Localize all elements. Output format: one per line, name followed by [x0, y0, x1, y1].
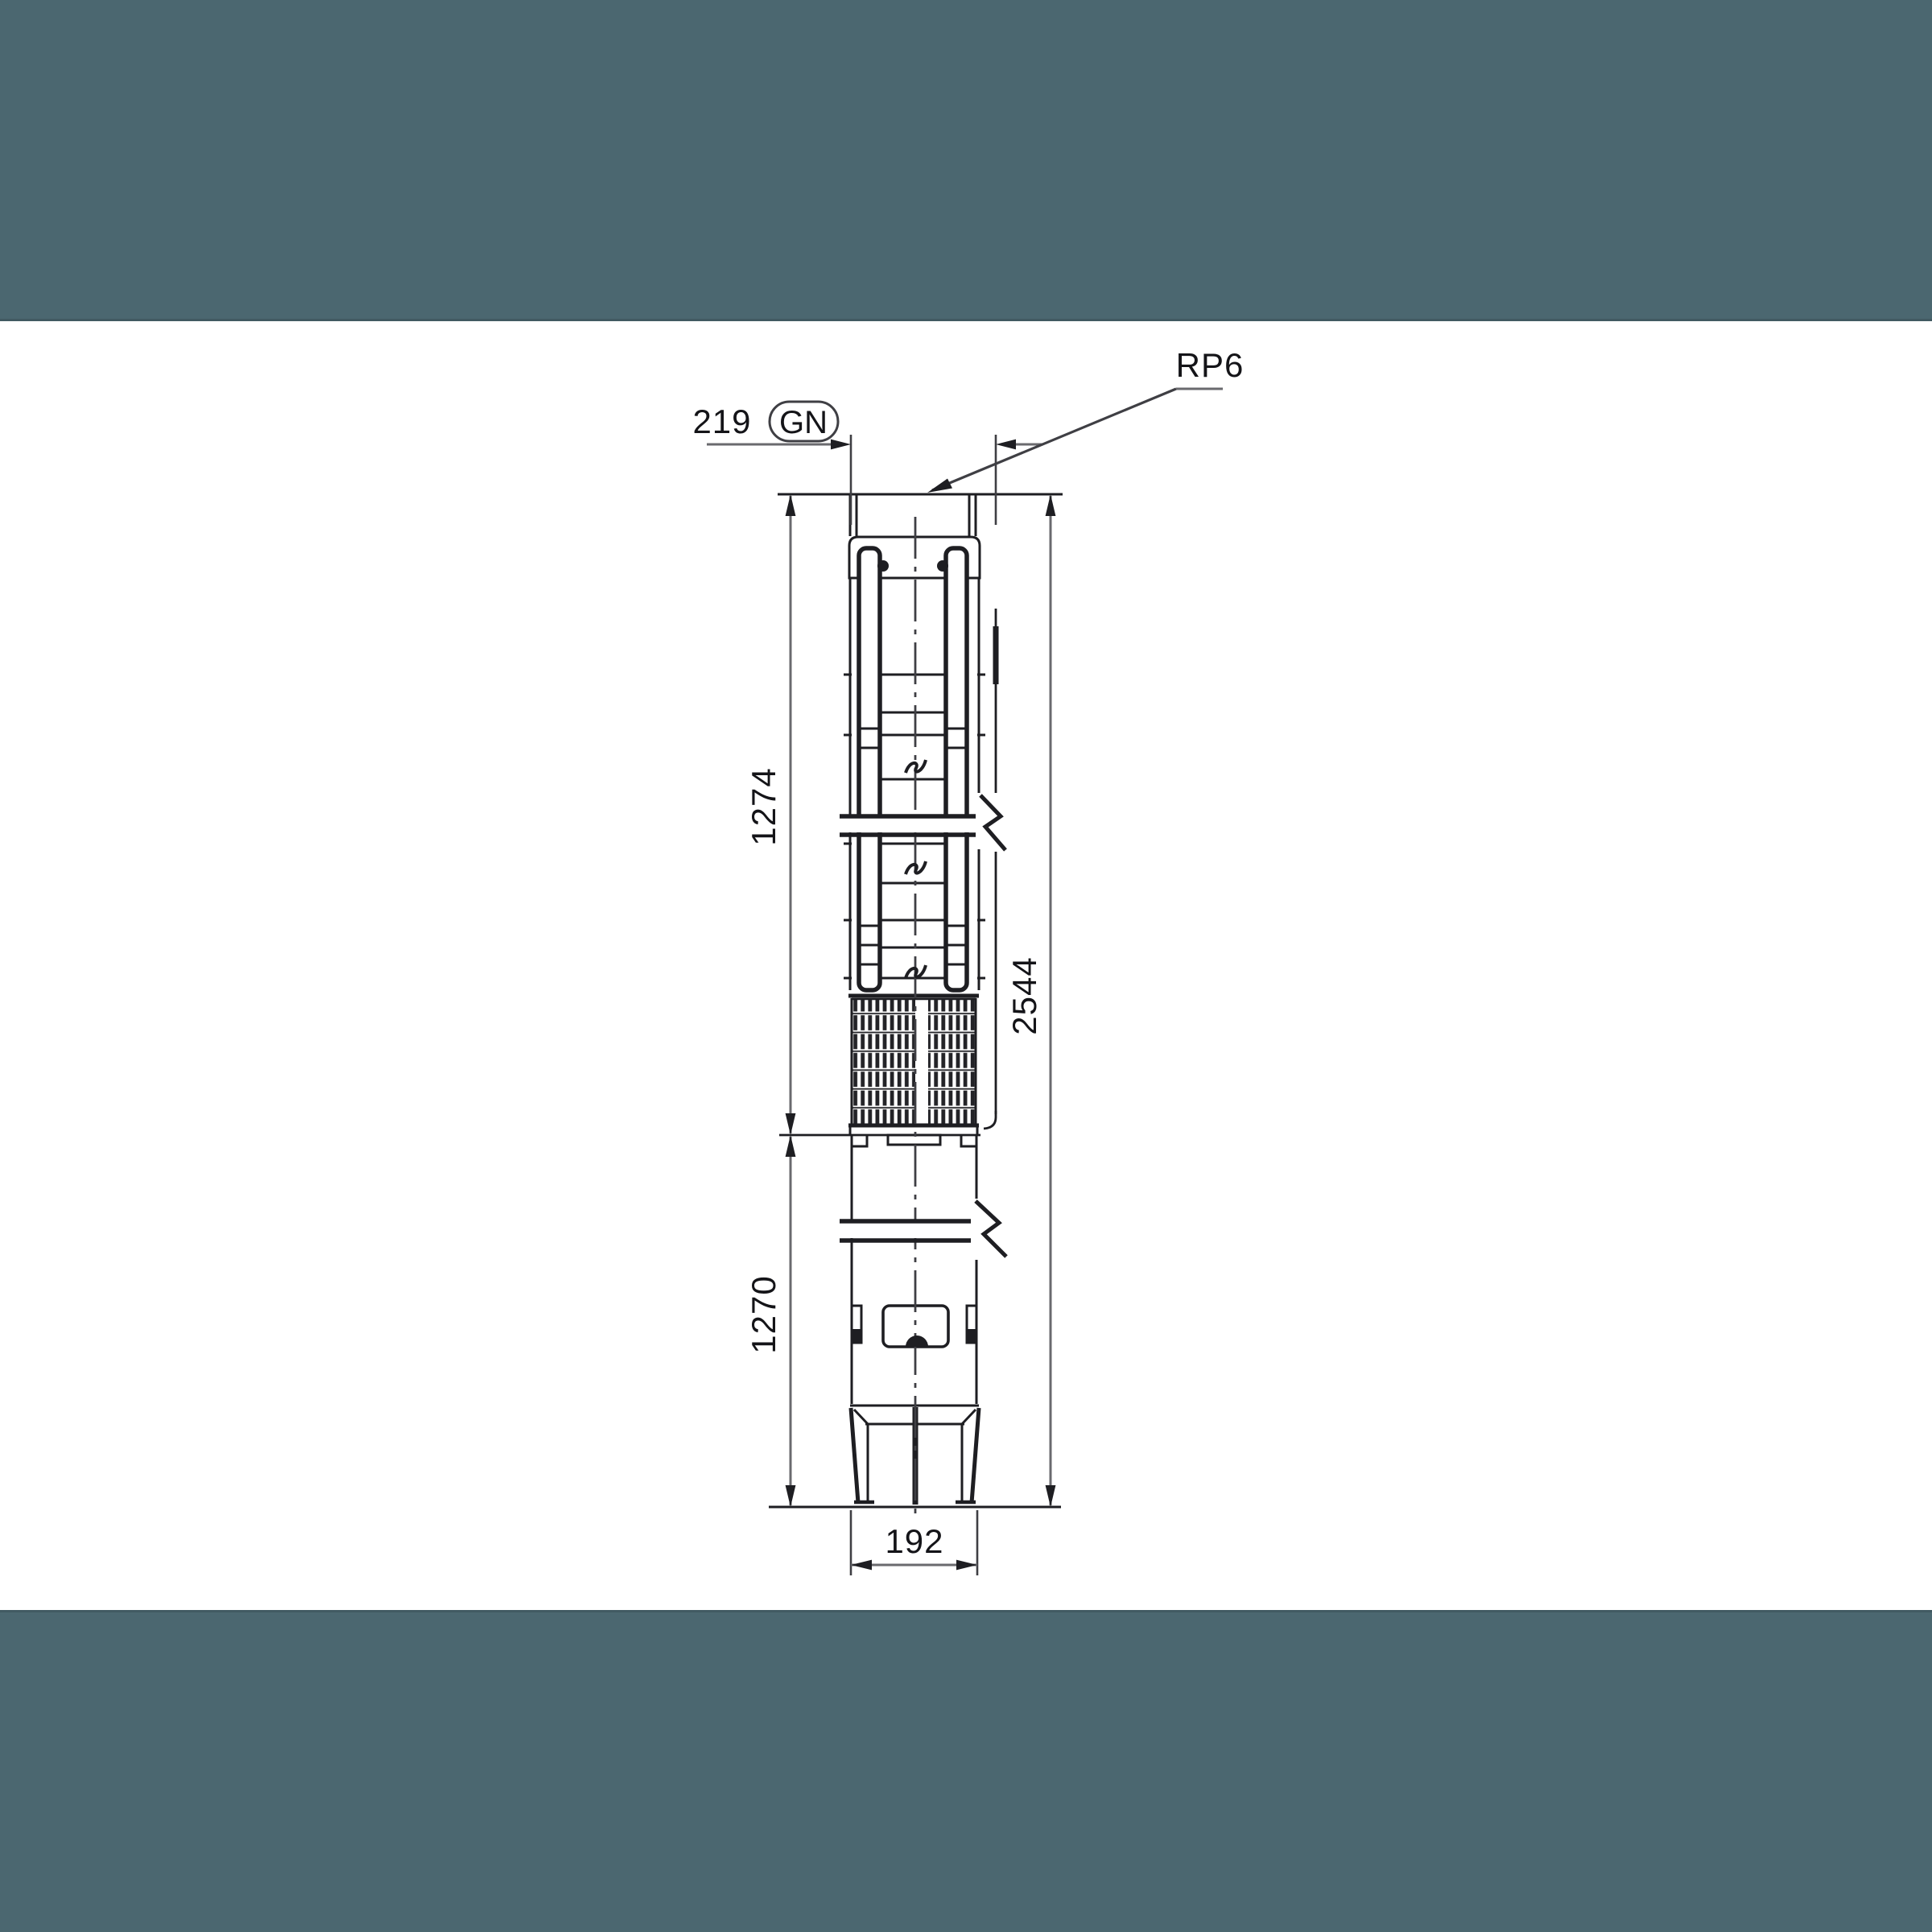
nameplate-gland: [906, 1335, 928, 1347]
power-cable: [984, 609, 999, 1129]
suction-strainer: [848, 996, 979, 1125]
screenshot-canvas: 219 GN RP6 1274 1270: [0, 0, 1932, 1932]
dim-label-pump-section-length: 1274: [745, 767, 782, 845]
dimension-bottom-diameter: 192: [851, 1510, 977, 1575]
dim-label-total-length: 2544: [1005, 956, 1043, 1034]
dimension-motor-section-length: 1270: [745, 1135, 795, 1507]
notch-fill-left: [852, 1329, 861, 1343]
pump-dimensional-drawing: 219 GN RP6 1274 1270: [0, 0, 1932, 1932]
cable-clip: [993, 626, 999, 684]
motor-body: [852, 1135, 976, 1404]
dim-label-outer-diameter: 219: [692, 402, 751, 440]
top-band-edge: [0, 319, 1932, 321]
strainer-center-gap: [915, 998, 928, 1124]
gn-badge-label: GN: [779, 405, 828, 440]
discharge-pipe: [850, 494, 976, 536]
bottom-band-edge: [0, 1610, 1932, 1612]
dim-label-motor-section-length: 1270: [745, 1275, 782, 1353]
dimension-total-length: 2544: [1005, 494, 1055, 1507]
leader-connection-thread: RP6: [927, 346, 1244, 493]
motor-top-tab: [888, 1135, 940, 1145]
break-symbol-upper: [828, 793, 1011, 850]
dim-label-bottom-diameter: 192: [885, 1522, 943, 1560]
tie-rods: [859, 548, 967, 990]
gn-badge: GN: [770, 402, 838, 441]
notch-fill-right: [967, 1329, 976, 1343]
dimension-outer-diameter: 219 GN: [692, 402, 1043, 525]
top-band: [0, 0, 1932, 321]
break-symbol-lower: [828, 1199, 1008, 1260]
rod-nub-right: [937, 560, 948, 572]
axis-break-mark: [906, 760, 926, 773]
label-connection-thread: RP6: [1176, 346, 1245, 384]
rod-nub-left: [877, 560, 889, 572]
axis-break-mark: [906, 861, 926, 874]
bottom-band: [0, 1610, 1932, 1932]
axis-break-mark: [906, 965, 926, 978]
dimension-pump-section-length: 1274: [745, 494, 795, 1135]
